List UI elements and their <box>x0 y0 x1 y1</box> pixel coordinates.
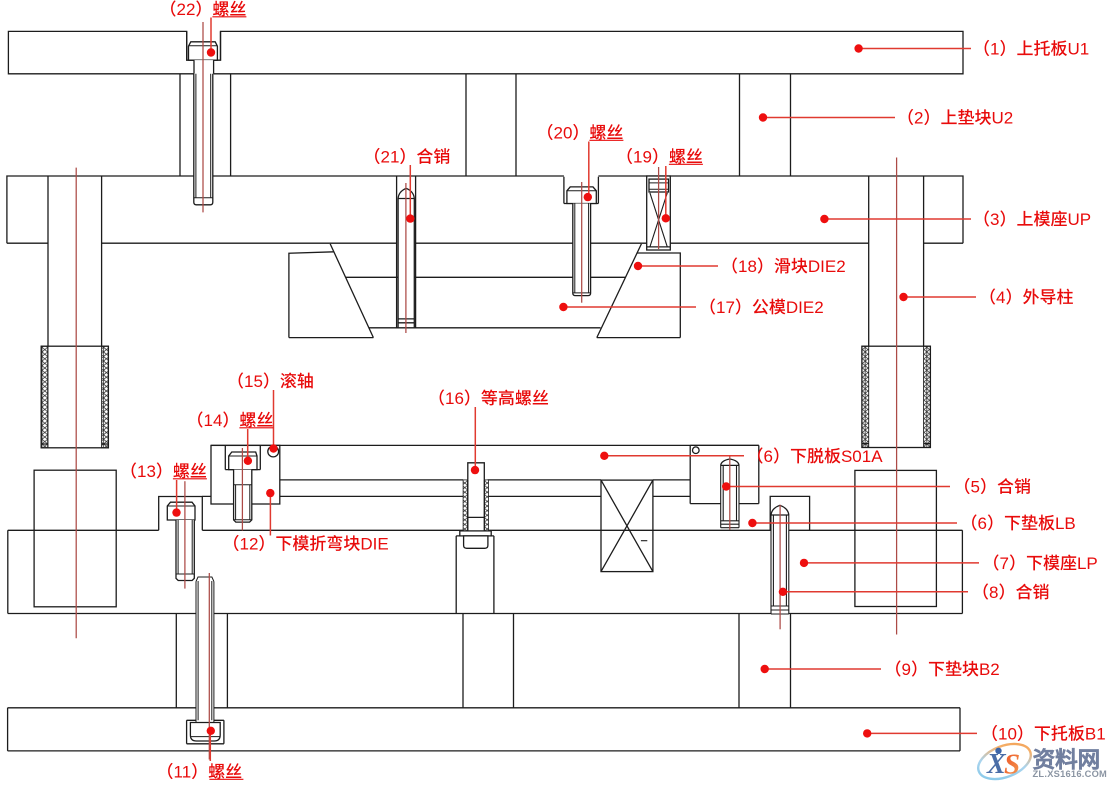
svg-text:（9）下垫块B2: （9）下垫块B2 <box>885 655 1000 680</box>
svg-text:（15）滚轴: （15）滚轴 <box>227 367 314 392</box>
svg-text:（4）外导柱: （4）外导柱 <box>979 283 1073 308</box>
svg-text:（5）合销: （5）合销 <box>954 473 1031 498</box>
svg-text:（8）合销: （8）合销 <box>972 578 1049 603</box>
svg-text:（2）上垫块U2: （2）上垫块U2 <box>897 104 1013 129</box>
svg-text:（3）上模座UP: （3）上模座UP <box>973 205 1091 230</box>
svg-text:（17）公模DIE2: （17）公模DIE2 <box>699 293 824 318</box>
svg-text:（1）上托板U1: （1）上托板U1 <box>973 35 1089 60</box>
svg-text:ZL.XS1616.COM: ZL.XS1616.COM <box>1033 769 1108 779</box>
svg-text:（6）下垫板LB: （6）下垫板LB <box>961 509 1076 534</box>
svg-text:（6）下脱板S01A: （6）下脱板S01A <box>747 442 884 467</box>
svg-text:（12）下模折弯块DIE: （12）下模折弯块DIE <box>223 530 389 555</box>
svg-text:（21）合销: （21）合销 <box>364 143 451 168</box>
svg-text:（7）下模座LP: （7）下模座LP <box>983 549 1098 574</box>
svg-text:（16）等高螺丝: （16）等高螺丝 <box>428 384 549 409</box>
svg-text:（18）滑块DIE2: （18）滑块DIE2 <box>721 252 846 277</box>
svg-text:S: S <box>1004 749 1020 781</box>
